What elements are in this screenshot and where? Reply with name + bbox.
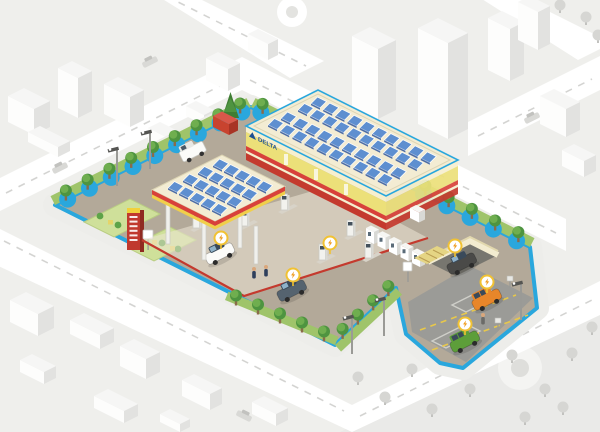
person	[264, 265, 268, 277]
bush-icon	[115, 222, 122, 229]
person	[252, 267, 256, 279]
city-building	[58, 61, 92, 118]
person	[481, 313, 485, 325]
canopy-pillar	[254, 226, 258, 264]
city-building	[352, 27, 396, 119]
scene-canvas: DELTA	[0, 0, 600, 432]
city-building	[418, 18, 468, 139]
bush-icon	[97, 213, 104, 220]
isometric-scene: DELTA	[0, 0, 600, 432]
